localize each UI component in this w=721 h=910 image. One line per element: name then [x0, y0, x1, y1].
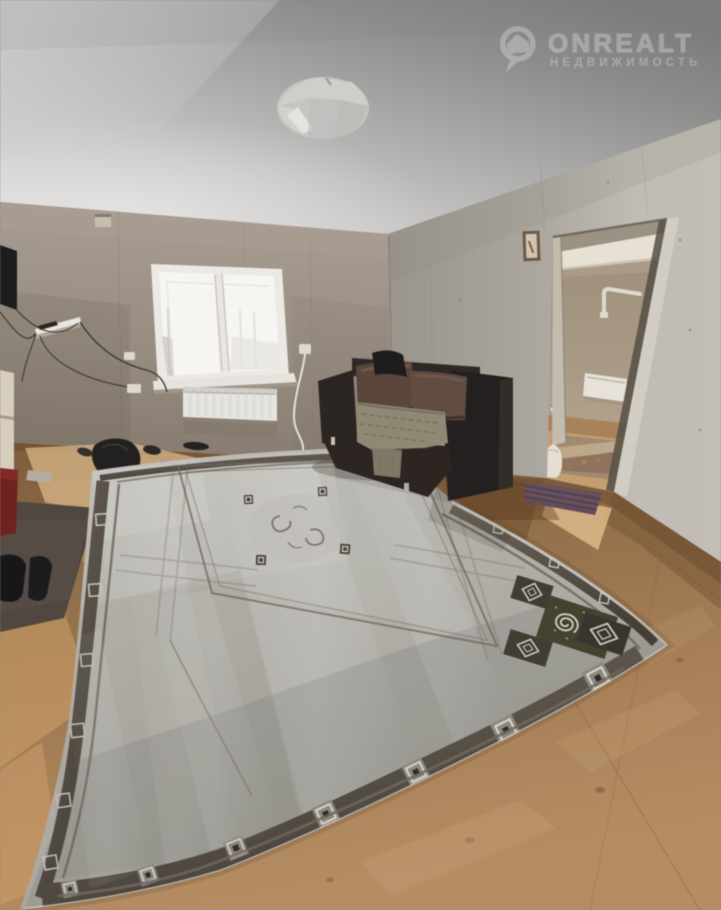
svg-text:ONREALT: ONREALT	[548, 28, 694, 58]
svg-text:НЕДВИЖИМОСТЬ: НЕДВИЖИМОСТЬ	[550, 57, 702, 69]
